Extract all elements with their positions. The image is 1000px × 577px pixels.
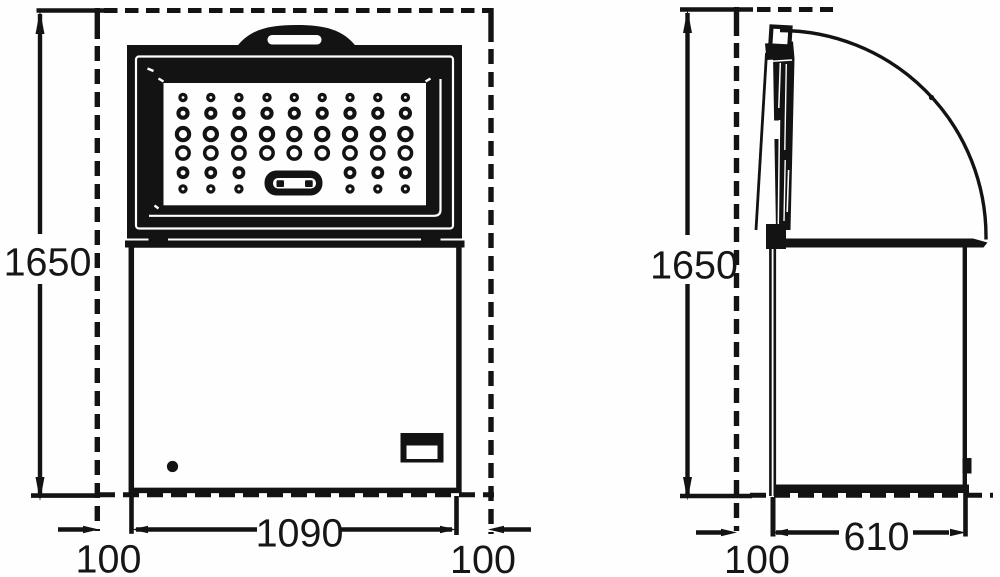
svg-text:610: 610 (844, 515, 910, 559)
svg-text:1650: 1650 (4, 241, 92, 285)
svg-text:1090: 1090 (256, 512, 344, 556)
svg-text:100: 100 (724, 538, 790, 577)
svg-text:100: 100 (76, 538, 142, 577)
svg-text:1650: 1650 (650, 244, 738, 288)
svg-text:100: 100 (450, 538, 516, 577)
